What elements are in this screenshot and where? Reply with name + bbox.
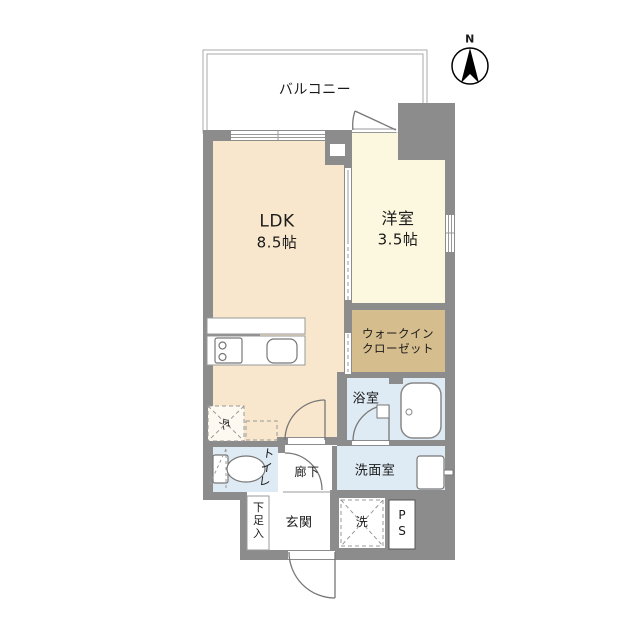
stove [215,338,242,363]
floorplan-canvas: バルコニー N LDK 8.5帖 洋室 3.5帖 ウォークイン クローゼット 浴… [0,0,640,640]
washing-machine-label: 洗 [356,516,369,528]
toilet-door-opening [278,453,285,490]
compass-north-label: N [465,34,475,45]
entrance-label: 玄関 [285,517,312,530]
kitchen-sink [267,339,297,363]
bathroom-label: 浴室 [352,393,379,406]
balcony-label: バルコニー [279,83,351,97]
ldk-size-label: 8.5帖 [257,236,298,251]
washroom-label: 洗面室 [355,465,396,478]
kitchen-counter [207,318,305,365]
ldk-door-opening [288,438,325,444]
walk-in-closet-label-2: クローゼット [362,343,434,355]
bath-faucet [389,376,403,384]
bath-door-opening [352,441,389,445]
western-room-size-label: 3.5帖 [378,233,419,248]
pipe-space-label: PS [396,508,408,540]
pillar-block [398,103,455,160]
room-ldk [213,141,344,441]
walk-in-closet-label-1: ウォークイン [362,328,434,340]
entry-door-opening [288,551,335,559]
compass [452,48,488,84]
ldk-name-label: LDK [259,214,294,231]
bath-door-handle [377,405,389,418]
shoe-storage-label: 下足入 [253,502,264,541]
closet-door-opening [345,333,351,374]
hallway-label: 廊下 [294,466,319,478]
western-room-name-label: 洋室 [381,211,414,227]
